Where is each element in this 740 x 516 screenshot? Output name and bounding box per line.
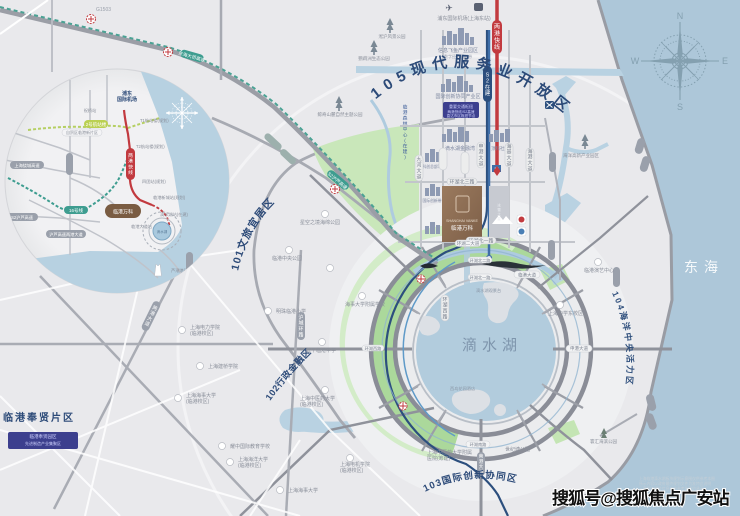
svg-text:明珠临港小学: 明珠临港小学	[276, 308, 306, 315]
svg-text:耀中国际教育学校: 耀中国际教育学校	[230, 443, 270, 450]
svg-text:四团站(规划): 四团站(规划)	[142, 178, 166, 185]
svg-text:环湖北三路: 环湖北三路	[449, 178, 474, 185]
svg-text:(临港校区): (临港校区)	[340, 467, 364, 474]
svg-text:申港大道: 申港大道	[478, 143, 483, 167]
svg-text:16号线: 16号线	[69, 207, 84, 214]
svg-text:先进制造产业集聚区: 先进制造产业集聚区	[25, 440, 61, 446]
svg-text:临港森林中心(在建): 临港森林中心(在建)	[403, 103, 408, 160]
svg-text:九河大道: 九河大道	[416, 156, 421, 180]
svg-text:冰雪之星: 冰雪之星	[497, 203, 501, 221]
svg-text:沪芦高速两港大道: 沪芦高速两港大道	[49, 231, 83, 238]
svg-text:海洋高新产业园区: 海洋高新产业园区	[563, 152, 599, 159]
svg-text:建平临港中学: 建平临港中学	[306, 347, 336, 354]
svg-text:两港快线: 两港快线	[494, 24, 500, 51]
svg-text:(临港校区): (临港校区)	[190, 330, 214, 337]
svg-text:国际创新带: 国际创新带	[423, 198, 442, 203]
svg-text:上海建桥学院: 上海建桥学院	[208, 363, 238, 370]
svg-text:滴水湖: 滴水湖	[157, 229, 168, 234]
svg-text:搜狐号@搜狐焦点广安站: 搜狐号@搜狐焦点广安站	[552, 488, 730, 508]
svg-text:上海电机学院: 上海电机学院	[340, 461, 370, 468]
svg-text:东海: 东海	[684, 259, 724, 275]
svg-text:上海中学东校区: 上海中学东校区	[548, 310, 583, 317]
svg-text:环湖南路: 环湖南路	[470, 441, 488, 448]
svg-text:(临港校区): (临港校区)	[300, 401, 324, 408]
svg-text:T2航站楼(规划): T2航站楼(规划)	[136, 143, 165, 150]
svg-text:海基大道: 海基大道	[506, 143, 511, 167]
svg-text:寰汇海滨公园: 寰汇海滨公园	[590, 438, 617, 445]
svg-text:上海临港滴水湖板块规划示意图仅供参考本图: 上海临港滴水湖板块规划示意图仅供参考本图	[639, 476, 715, 481]
svg-text:鹦鹉洲生态公园: 鹦鹉洲生态公园	[358, 55, 390, 62]
svg-text:淞沪风景公园: 淞沪风景公园	[379, 33, 406, 40]
svg-text:环湖北二路: 环湖北二路	[470, 257, 492, 264]
svg-text:环湖二大道: 环湖二大道	[457, 240, 480, 247]
svg-text:申港大道: 申港大道	[570, 345, 588, 352]
svg-text:上海海事大学: 上海海事大学	[186, 392, 216, 399]
svg-text:滴水湖观景台: 滴水湖观景台	[476, 287, 501, 294]
svg-text:国际机场: 国际机场	[117, 96, 137, 103]
svg-text:信息飞鱼产业园区: 信息飞鱼产业园区	[438, 47, 478, 54]
svg-text:鲸奇山麓自然主题公园: 鲸奇山麓自然主题公园	[318, 111, 363, 118]
svg-text:临港新城站(规划): 临港新城站(规划)	[153, 194, 186, 201]
svg-text:临港中央公园: 临港中央公园	[272, 255, 302, 262]
svg-text:环湖北一路: 环湖北一路	[470, 274, 492, 281]
svg-text:直达市区枢纽节点: 直达市区枢纽节点	[447, 113, 476, 118]
svg-text:国际创新协同产业区: 国际创新协同产业区	[435, 93, 480, 100]
svg-text:上海海洋大学: 上海海洋大学	[238, 456, 268, 463]
svg-text:环湖西路: 环湖西路	[365, 345, 383, 352]
svg-text:S: S	[677, 102, 683, 112]
svg-text:环湖西路: 环湖西路	[442, 297, 447, 320]
svg-text:临港万科: 临港万科	[113, 209, 133, 216]
svg-text:上海中医药大学附属: 上海中医药大学附属	[427, 449, 472, 456]
svg-text:上海绕城高速: 上海绕城高速	[14, 162, 40, 169]
svg-text:两港快线: 两港快线	[128, 153, 133, 176]
svg-text:祝桥站: 祝桥站	[84, 107, 97, 114]
svg-text:E: E	[722, 56, 728, 66]
svg-text:W: W	[631, 56, 640, 66]
svg-text:临港万科: 临港万科	[451, 224, 474, 232]
svg-text:滴水湖: 滴水湖	[462, 336, 522, 354]
svg-text:上海海事大学: 上海海事大学	[288, 487, 318, 494]
svg-text:所示内容以政府最终规划文件为准特此说明: 所示内容以政府最终规划文件为准特此说明	[639, 481, 711, 486]
svg-text:浦东国际机场(上海东站): 浦东国际机场(上海东站)	[437, 15, 491, 22]
svg-text:临港大道: 临港大道	[518, 271, 536, 278]
svg-text:临港奉贤园区: 临港奉贤园区	[30, 433, 57, 440]
svg-text:浦东: 浦东	[122, 90, 132, 97]
svg-text:2号航站楼: 2号航站楼	[86, 121, 107, 128]
svg-text:沪城环路: 沪城环路	[298, 314, 303, 338]
svg-text:S2沪芦高速: S2沪芦高速	[11, 214, 34, 221]
svg-text:T1航站楼(规划): T1航站楼(规划)	[140, 117, 169, 124]
svg-text:重要交通枢纽: 重要交通枢纽	[449, 103, 473, 109]
svg-text:(临港校区): (临港校区)	[186, 398, 210, 405]
svg-text:SHANGHAI VANKE: SHANGHAI VANKE	[446, 219, 478, 223]
svg-text:医院(筹建): 医院(筹建)	[427, 455, 451, 462]
svg-text:海港大道: 海港大道	[527, 148, 532, 172]
svg-text:自贸区临港新片区: 自贸区临港新片区	[66, 129, 98, 135]
svg-text:(临港校区): (临港校区)	[238, 462, 262, 469]
svg-text:西岛花园酒店: 西岛花园酒店	[450, 385, 475, 392]
svg-text:上海中医药大学: 上海中医药大学	[300, 395, 335, 402]
svg-text:滴水湖金融湾: 滴水湖金融湾	[445, 145, 475, 152]
svg-text:世纪塘公园: 世纪塘公园	[505, 446, 530, 453]
svg-text:星空之境海绵公园: 星空之境海绵公园	[300, 219, 340, 226]
svg-text:N: N	[677, 11, 684, 21]
svg-text:临港奉贤片区: 临港奉贤片区	[3, 411, 75, 424]
svg-text:上海电力学院: 上海电力学院	[190, 324, 220, 331]
svg-text:✈: ✈	[445, 3, 453, 13]
svg-text:临港演艺中心: 临港演艺中心	[584, 267, 614, 274]
svg-text:G1503: G1503	[96, 7, 111, 13]
svg-text:海事大学附属学校: 海事大学附属学校	[345, 301, 385, 308]
